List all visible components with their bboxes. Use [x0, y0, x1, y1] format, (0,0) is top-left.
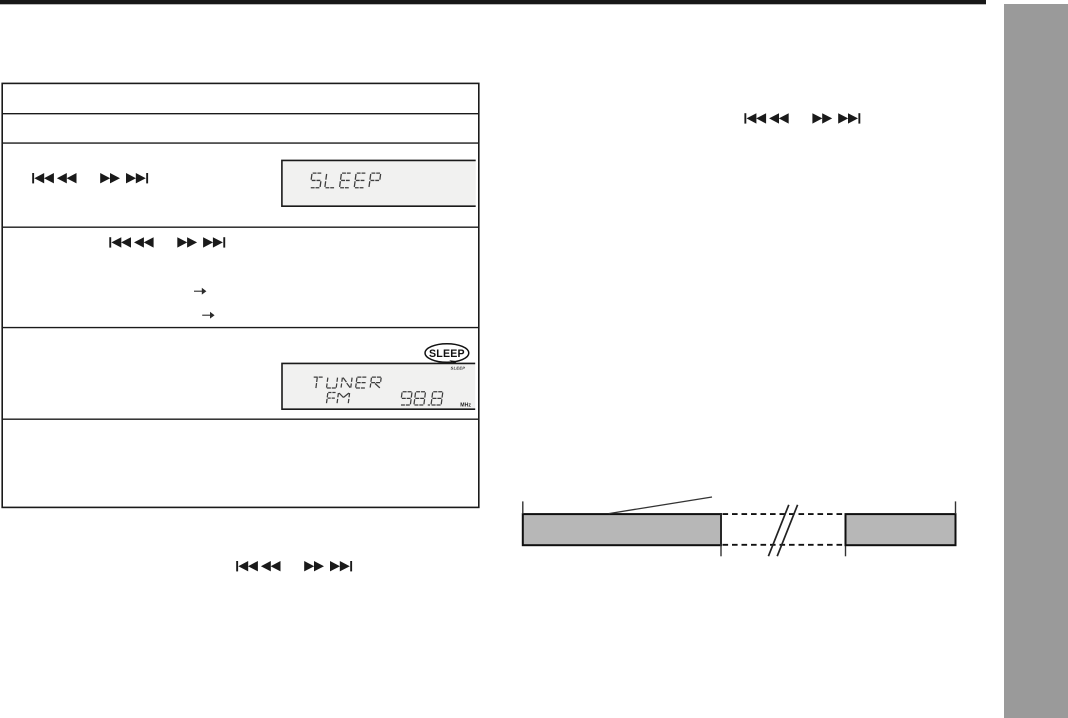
svg-text:SLEEP: SLEEP: [450, 365, 466, 370]
svg-text:MHz: MHz: [460, 403, 471, 409]
svg-text:SLEEP: SLEEP: [429, 348, 465, 360]
